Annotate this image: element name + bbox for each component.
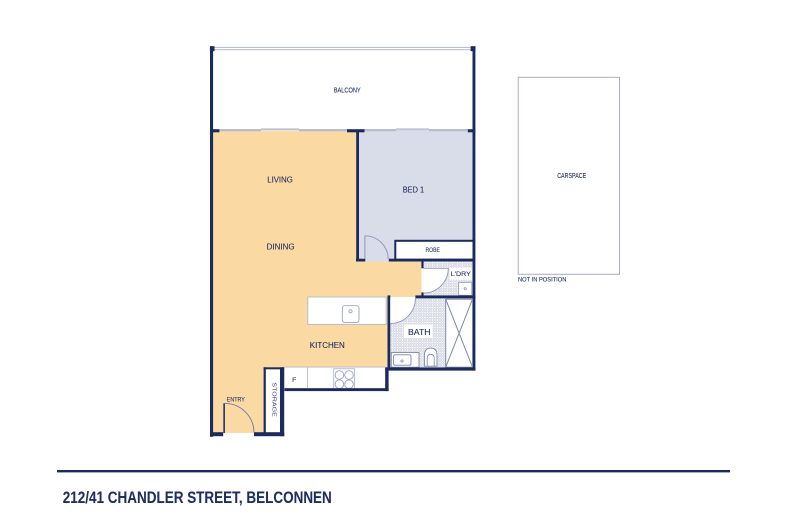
svg-text:ROBE: ROBE <box>425 248 440 254</box>
svg-text:BATH: BATH <box>408 328 431 337</box>
svg-text:F: F <box>292 377 296 384</box>
svg-text:CARSPACE: CARSPACE <box>557 173 586 180</box>
svg-text:ENTRY: ENTRY <box>227 397 246 404</box>
svg-text:L'DRY: L'DRY <box>451 271 472 278</box>
svg-text:LIVING: LIVING <box>267 175 293 184</box>
svg-text:BED 1: BED 1 <box>403 185 424 194</box>
svg-text:212/41 CHANDLER STREET, BELCON: 212/41 CHANDLER STREET, BELCONNEN <box>63 489 332 507</box>
svg-text:NOT IN POSITION: NOT IN POSITION <box>518 277 567 284</box>
svg-text:BALCONY: BALCONY <box>334 88 361 95</box>
svg-text:KITCHEN: KITCHEN <box>310 341 345 350</box>
svg-text:STORAGE: STORAGE <box>270 382 276 417</box>
svg-text:DINING: DINING <box>267 243 295 252</box>
